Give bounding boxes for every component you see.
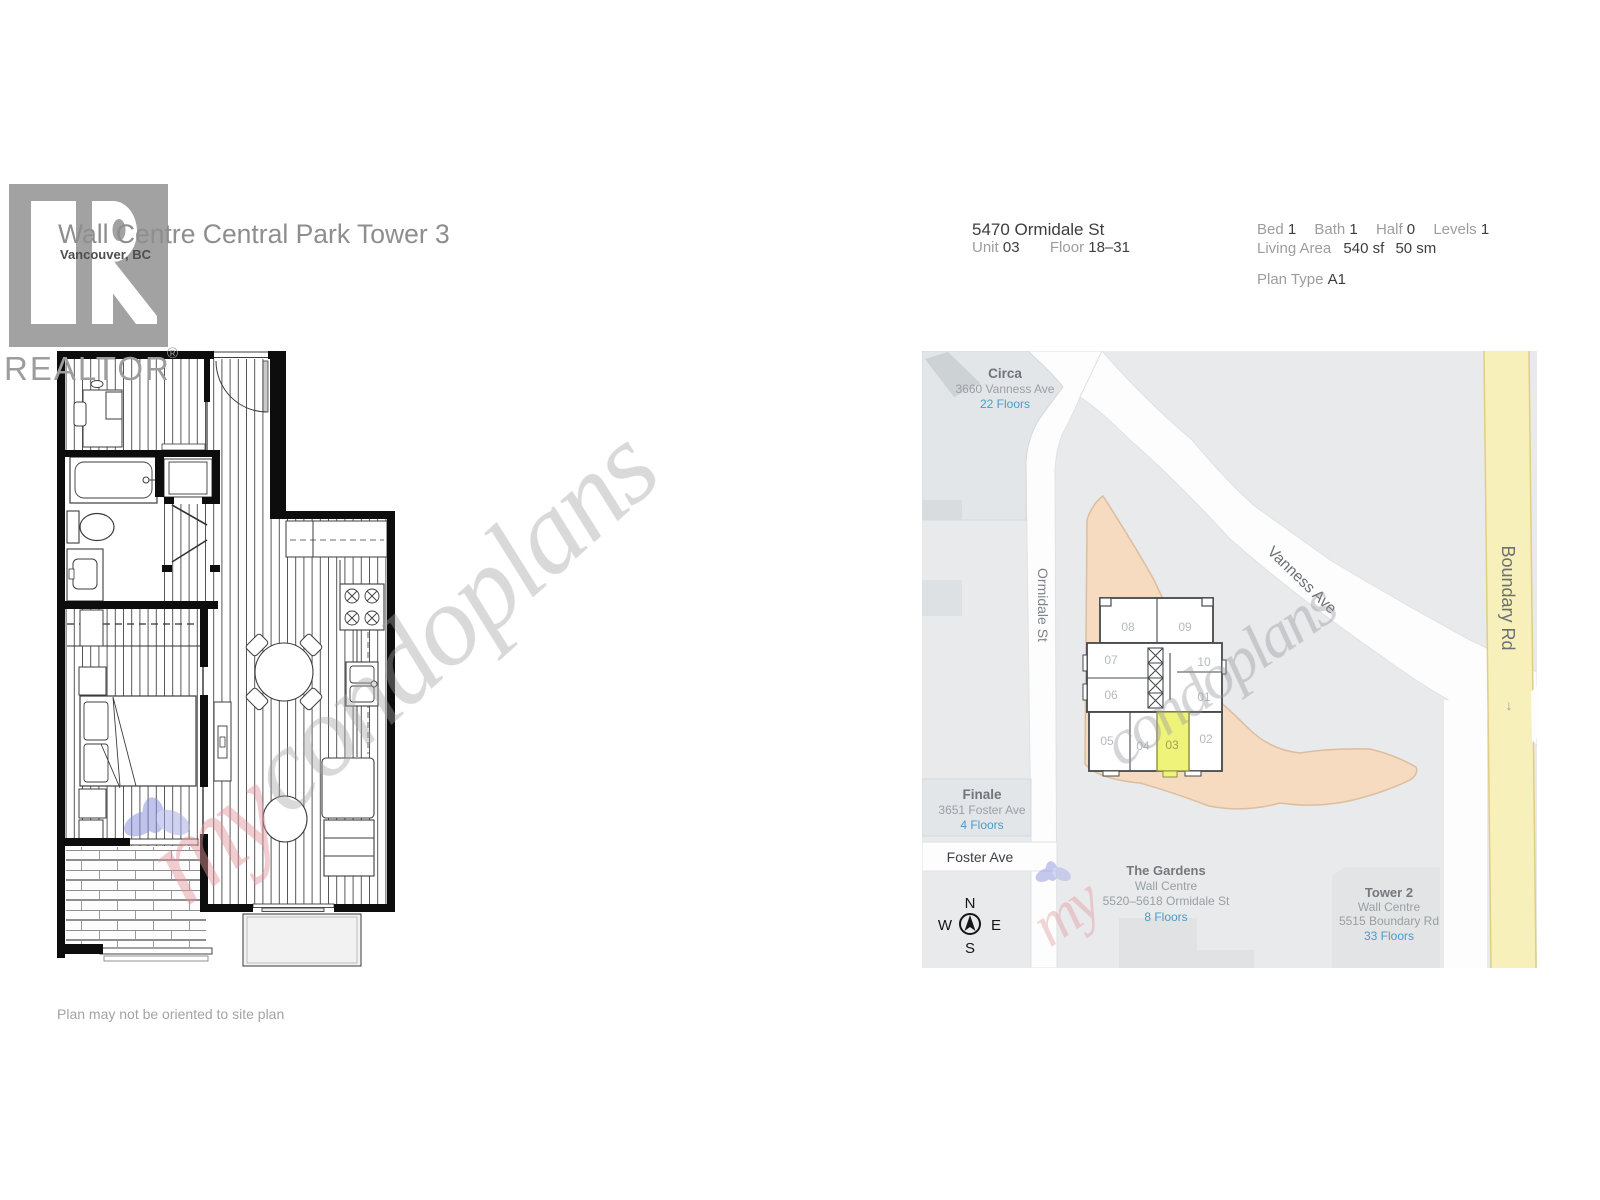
svg-text:S: S: [965, 940, 975, 957]
svg-text:07: 07: [1104, 653, 1118, 667]
svg-text:5515 Boundary Rd: 5515 Boundary Rd: [1339, 914, 1439, 928]
svg-text:Foster Ave: Foster Ave: [947, 849, 1014, 865]
svg-text:E: E: [991, 917, 1001, 934]
svg-text:3660 Vanness Ave: 3660 Vanness Ave: [956, 382, 1055, 396]
svg-text:Wall Centre: Wall Centre: [1135, 879, 1198, 893]
svg-text:Tower 2: Tower 2: [1365, 885, 1413, 900]
svg-text:3651 Foster Ave: 3651 Foster Ave: [938, 803, 1025, 817]
svg-text:33 Floors: 33 Floors: [1364, 929, 1414, 943]
svg-text:The Gardens: The Gardens: [1126, 863, 1205, 878]
svg-text:Circa: Circa: [988, 366, 1022, 381]
svg-text:N: N: [965, 895, 976, 912]
svg-text:22 Floors: 22 Floors: [980, 397, 1030, 411]
svg-text:5520–5618 Ormidale St: 5520–5618 Ormidale St: [1103, 894, 1230, 908]
svg-text:Boundary Rd: Boundary Rd: [1498, 545, 1518, 650]
svg-text:W: W: [938, 917, 953, 934]
svg-text:Wall Centre: Wall Centre: [1358, 900, 1421, 914]
svg-text:↓: ↓: [1506, 697, 1513, 713]
svg-text:4 Floors: 4 Floors: [960, 818, 1003, 832]
svg-text:08: 08: [1121, 620, 1135, 634]
svg-text:8 Floors: 8 Floors: [1144, 910, 1187, 924]
svg-text:02: 02: [1199, 732, 1213, 746]
svg-text:®: ®: [167, 345, 178, 362]
svg-text:09: 09: [1178, 620, 1192, 634]
svg-text:REALTOR: REALTOR: [4, 350, 171, 387]
svg-text:06: 06: [1104, 688, 1118, 702]
svg-text:Ormidale St: Ormidale St: [1035, 568, 1051, 642]
svg-text:Finale: Finale: [962, 787, 1002, 802]
